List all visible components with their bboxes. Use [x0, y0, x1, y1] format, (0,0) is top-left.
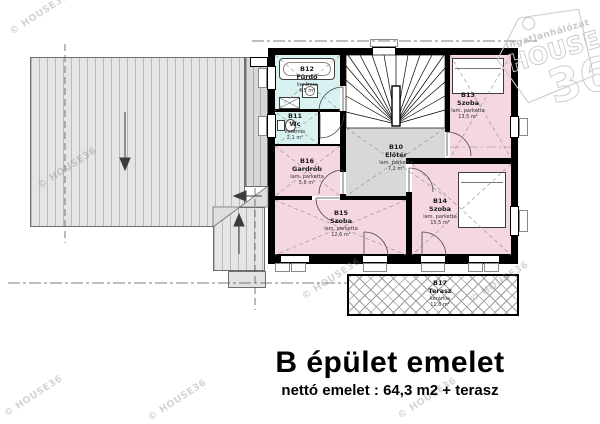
- room-area: 15,5 m²: [423, 220, 457, 226]
- window-top-stairs: [372, 47, 396, 56]
- wall-b13-left: [445, 55, 450, 132]
- room-floor: lam. parketta: [324, 226, 358, 232]
- room-label-b15: B15 Szoba lam. parketta 12,6 m²: [324, 210, 358, 238]
- window-label-bottom-4: [421, 263, 445, 272]
- room-floor: lam. parketta: [379, 160, 413, 166]
- room-area: 4,5 m²: [296, 88, 317, 94]
- window-left-bath: [267, 66, 276, 90]
- window-label-bottom-1: [275, 263, 290, 272]
- house36-logo-graphic: ingatlanhálózat HOUSE 36: [492, 0, 600, 120]
- room-name: Fürdő: [296, 74, 317, 82]
- room-label-b10: B10 Előtér lam. parketta 7,2 m²: [379, 144, 413, 172]
- bed-b14-pillow-line: [461, 182, 503, 183]
- house36-logo: ingatlanhálózat HOUSE 36: [492, 0, 600, 124]
- room-name: Terasz: [428, 288, 451, 296]
- room-floor: kerámia: [285, 129, 305, 135]
- room-name: Szoba: [423, 206, 457, 214]
- room-area: 13,5 m²: [451, 114, 485, 120]
- wall-b15-b14: [406, 192, 412, 254]
- room-floor: kerámia: [296, 82, 317, 88]
- window-label-left-bath: [258, 68, 267, 88]
- wall-wc-wardrobe: [275, 144, 340, 146]
- floorplan-stage: B12 Fürdő kerámia 4,5 m² B11 Wc kerámia …: [0, 0, 600, 424]
- room-floor: lam. parketta: [290, 174, 324, 180]
- wall-wc-right: [318, 112, 320, 144]
- room-label-b12: B12 Fürdő kerámia 4,5 m²: [296, 66, 317, 94]
- room-label-b16: B16 Gardrób lam. parketta 5,6 m²: [290, 158, 324, 186]
- bath-cabinet: [279, 97, 300, 109]
- staircase: [346, 55, 445, 128]
- room-area: 11,6 m²: [428, 302, 451, 308]
- room-label-b17: B17 Terasz kerámia 11,6 m²: [428, 280, 451, 308]
- room-name: Wc: [285, 121, 305, 129]
- window-label-bottom-2: [291, 263, 306, 272]
- window-label-right-b14: [519, 210, 528, 232]
- terrace-door-b14: [420, 255, 446, 263]
- toilet-tank: [277, 120, 285, 131]
- window-label-bottom-6: [484, 263, 499, 272]
- window-label-bottom-5: [468, 263, 483, 272]
- room-name: Gardrób: [290, 166, 324, 174]
- window-right-b14: [510, 206, 519, 236]
- roof-step: [228, 271, 266, 288]
- window-label-top: [370, 39, 398, 47]
- plan-subtitle: nettó emelet : 64,3 m2 + terasz: [262, 382, 518, 399]
- room-label-b11: B11 Wc kerámia 2,1 m²: [285, 113, 305, 141]
- room-floor: lam. parketta: [423, 214, 457, 220]
- wall-b15-top-right: [340, 196, 406, 200]
- plan-title: B épület emelet: [262, 346, 518, 380]
- roof-deck-small: [213, 207, 265, 271]
- roof-vent-box: [250, 57, 268, 67]
- window-bottom-b14: [468, 255, 500, 263]
- watermark: © HOUSE36: [146, 377, 209, 423]
- window-left-wc: [267, 114, 276, 138]
- watermark: © HOUSE36: [2, 373, 65, 419]
- room-name: Előtér: [379, 152, 413, 160]
- wall-bath-stairs-lower: [340, 111, 346, 172]
- room-area: 2,1 m²: [285, 135, 305, 141]
- terrace-door-b15: [362, 255, 388, 263]
- logo-tag-hole: [521, 16, 536, 31]
- room-floor: lam. parketta: [451, 108, 485, 114]
- room-name: Szoba: [324, 218, 358, 226]
- bed-b14: [458, 172, 506, 228]
- room-area: 12,6 m²: [324, 232, 358, 238]
- room-floor: kerámia: [428, 296, 451, 302]
- window-label-left-wc: [258, 116, 267, 136]
- room-name: Szoba: [451, 100, 485, 108]
- window-label-bottom-3: [363, 263, 387, 272]
- window-bottom-b15: [280, 255, 310, 263]
- wall-bath-wc: [275, 109, 340, 112]
- room-area: 5,6 m²: [290, 180, 324, 186]
- room-area: 7,2 m²: [379, 166, 413, 172]
- room-label-b14: B14 Szoba lam. parketta 15,5 m²: [423, 198, 457, 226]
- roof-deck-large: [30, 57, 245, 227]
- watermark: © HOUSE36: [8, 0, 71, 37]
- caption: B épület emelet nettó emelet : 64,3 m2 +…: [262, 346, 518, 399]
- wall-bath-stairs-upper: [340, 55, 346, 86]
- room-label-b13: B13 Szoba lam. parketta 13,5 m²: [451, 92, 485, 120]
- wall-b15-top-left: [275, 196, 312, 200]
- wall-b13-bottom: [406, 158, 511, 164]
